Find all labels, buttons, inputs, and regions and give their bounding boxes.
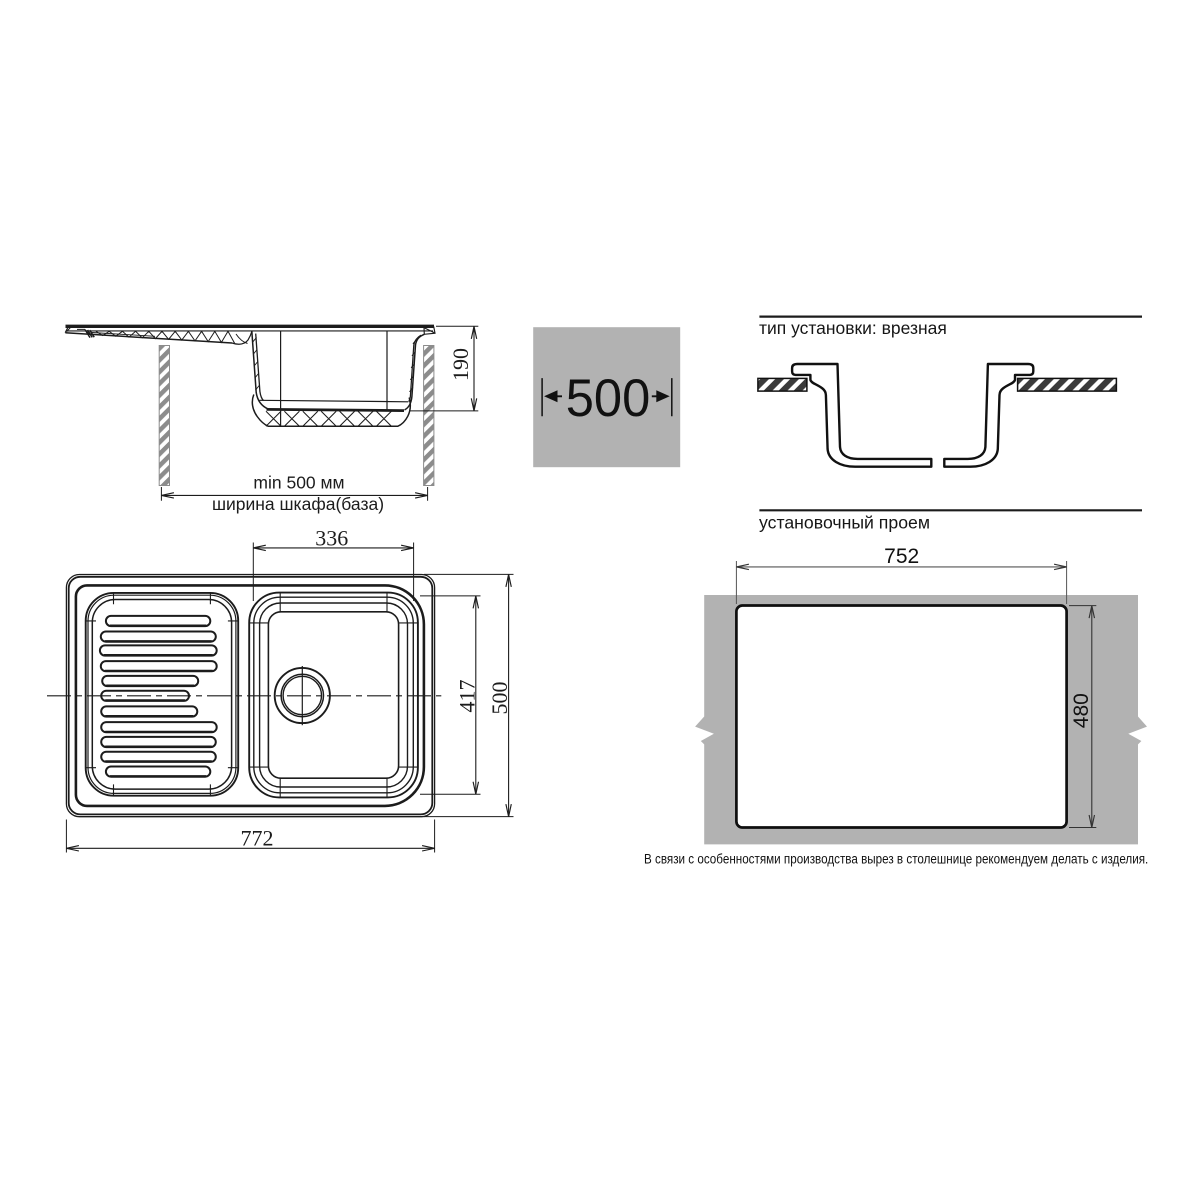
svg-text:772: 772 [241, 826, 274, 851]
svg-text:480: 480 [1070, 693, 1093, 728]
svg-text:ширина шкафа(база): ширина шкафа(база) [212, 494, 384, 514]
svg-text:500: 500 [566, 369, 651, 428]
svg-text:установочный проем: установочный проем [759, 512, 930, 532]
svg-text:500: 500 [487, 682, 512, 715]
svg-text:190: 190 [448, 348, 473, 381]
svg-text:тип установки: врезная: тип установки: врезная [759, 318, 947, 338]
svg-text:min 500 мм: min 500 мм [253, 473, 344, 493]
svg-text:В связи с особенностями произв: В связи с особенностями производства выр… [644, 851, 1148, 867]
svg-text:417: 417 [455, 680, 480, 713]
svg-text:336: 336 [315, 525, 348, 550]
svg-text:752: 752 [884, 545, 919, 568]
